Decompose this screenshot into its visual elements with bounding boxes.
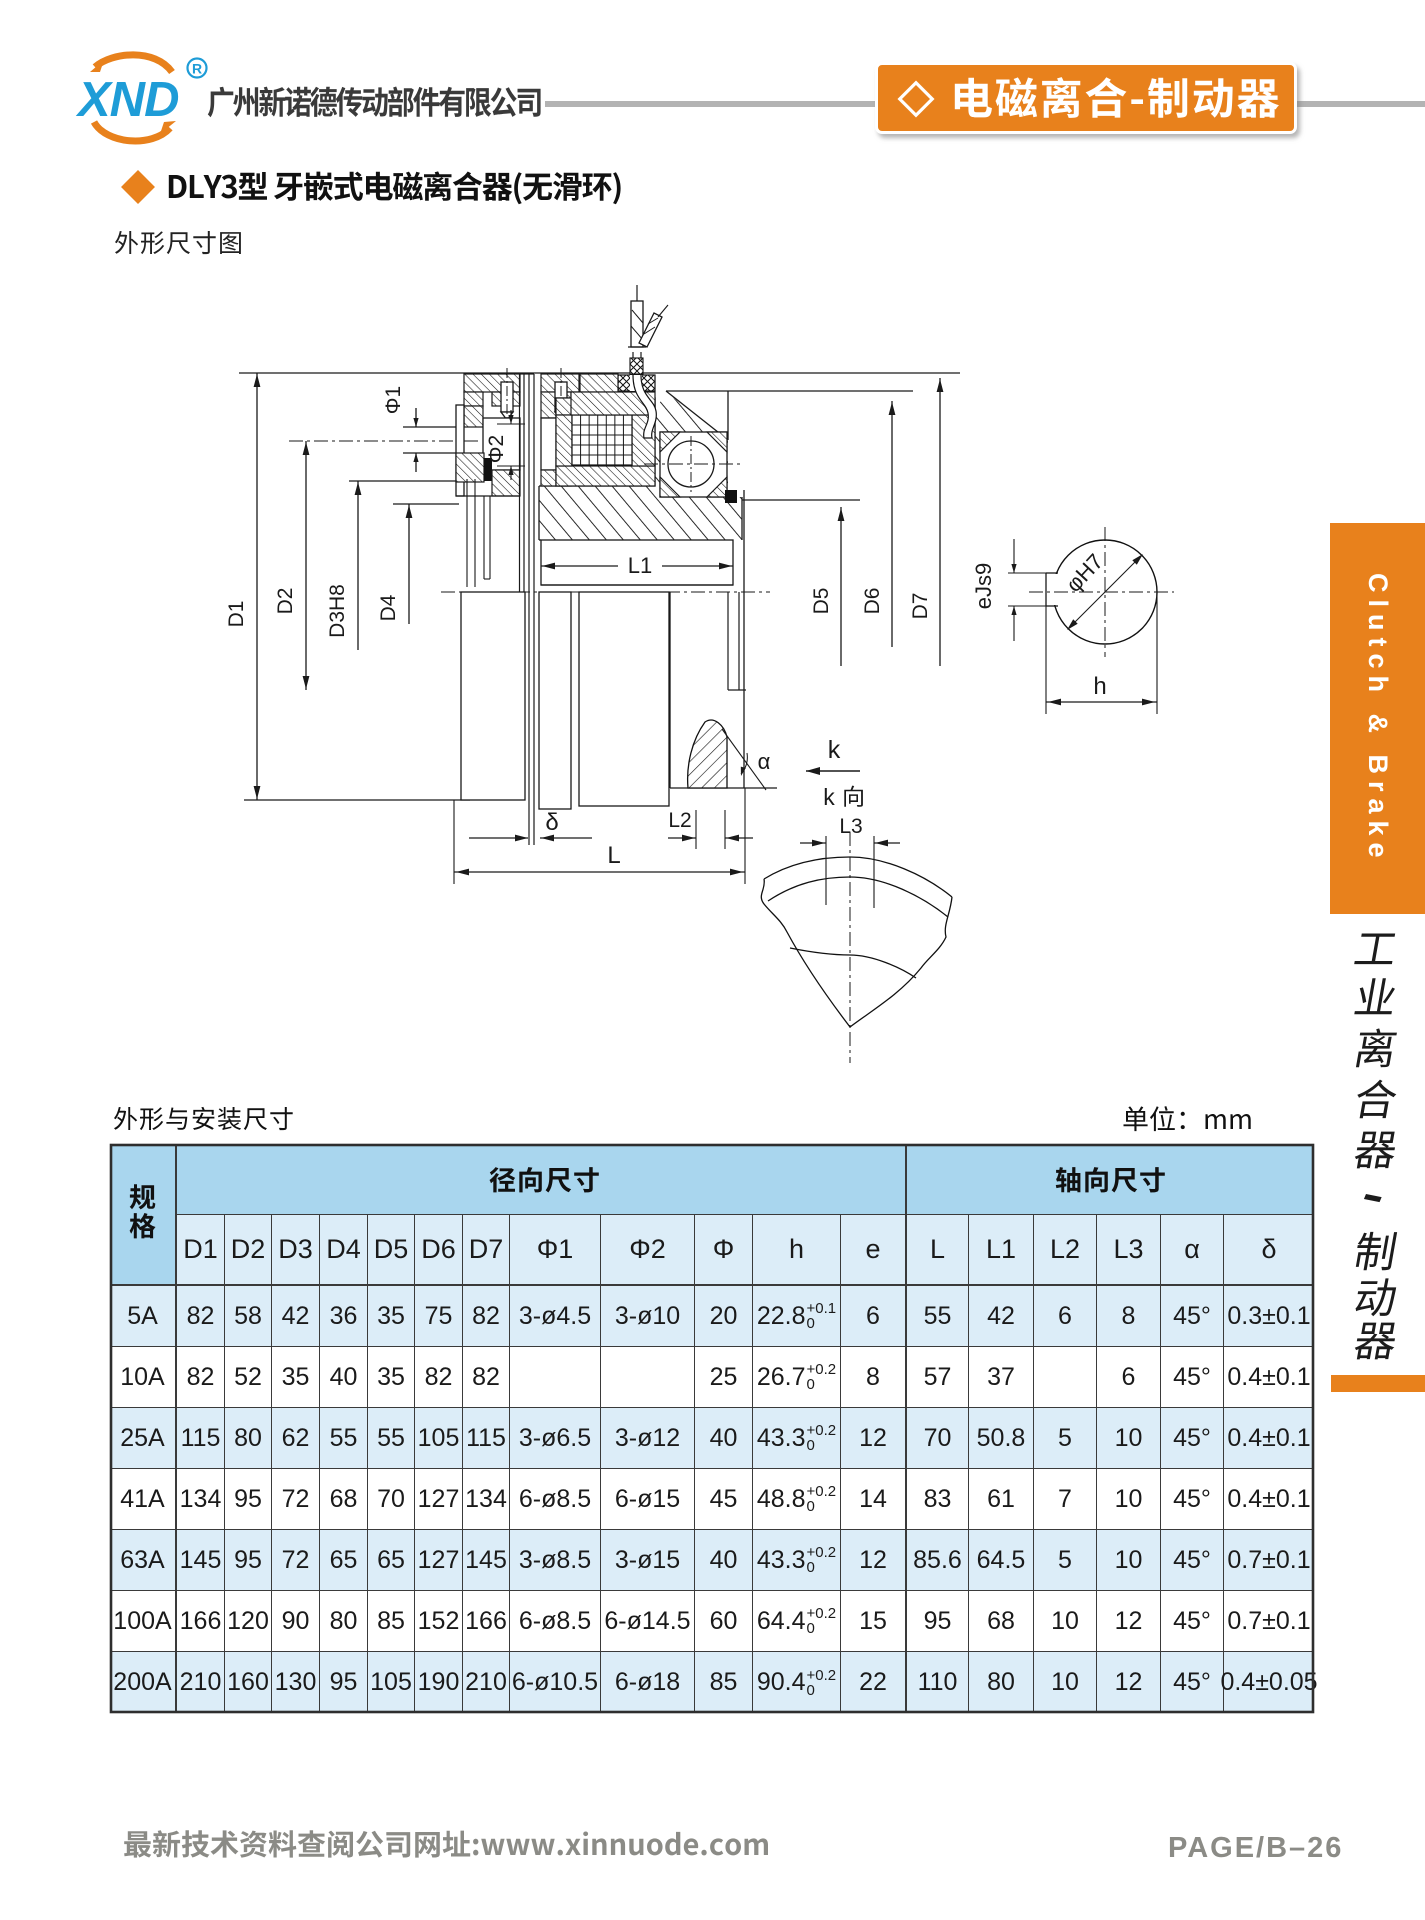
svg-text:α: α — [758, 749, 771, 774]
svg-text:k: k — [823, 784, 835, 810]
svg-text:D1: D1 — [225, 601, 248, 628]
svg-text:D4: D4 — [377, 594, 400, 621]
svg-text:L3: L3 — [839, 815, 862, 838]
svg-text:eJs9: eJs9 — [971, 563, 996, 609]
svg-text:L1: L1 — [628, 553, 652, 578]
svg-text:L2: L2 — [668, 809, 691, 832]
svg-text:D7: D7 — [909, 593, 932, 620]
svg-text:h: h — [1093, 673, 1106, 700]
svg-text:Φ2: Φ2 — [485, 435, 508, 463]
svg-text:D6: D6 — [861, 588, 884, 615]
svg-text:D3H8: D3H8 — [326, 584, 349, 638]
svg-text:L: L — [607, 842, 620, 869]
svg-text:D2: D2 — [274, 588, 297, 615]
svg-text:D5: D5 — [810, 588, 833, 615]
svg-text:k: k — [828, 736, 841, 764]
svg-text:δ: δ — [545, 809, 558, 836]
svg-text:Φ1: Φ1 — [382, 386, 405, 414]
